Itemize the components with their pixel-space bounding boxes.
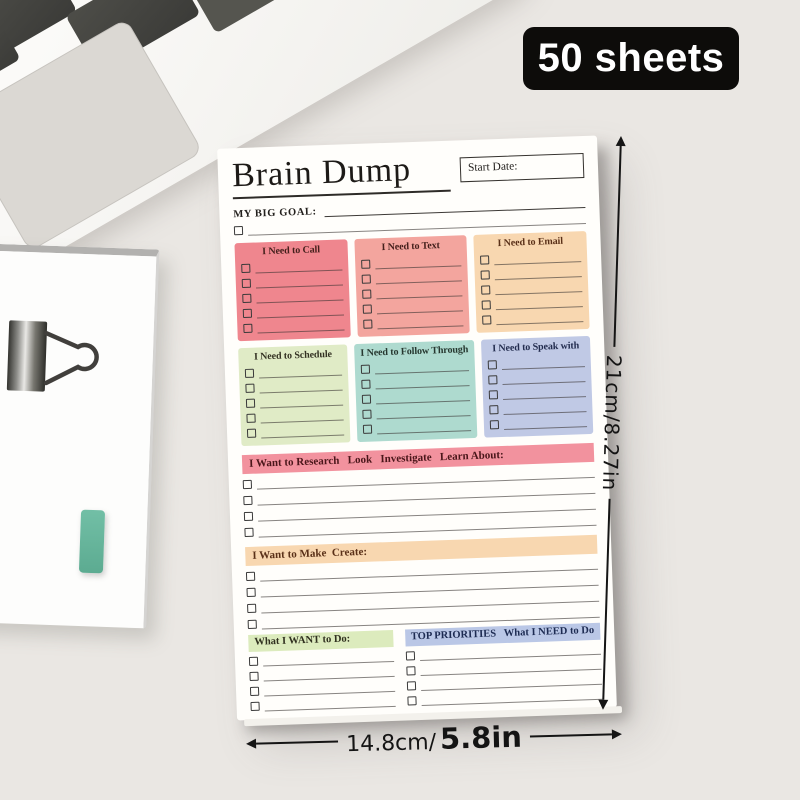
width-dimension-label: 14.8cm/ 5.8in	[338, 719, 531, 758]
checkbox	[361, 274, 370, 283]
width-cm-label: 14.8cm/	[346, 730, 437, 757]
notepad-title: Brain Dump	[231, 151, 450, 194]
checkbox	[244, 511, 253, 520]
checkbox	[406, 666, 415, 675]
note-box-row-1: I Need to CallI Need to TextI Need to Em…	[234, 231, 589, 341]
arrow-up-icon	[616, 136, 626, 146]
arrow-right-icon	[612, 729, 622, 739]
write-line	[258, 329, 345, 333]
sheet-count-badge: 50 sheets	[523, 27, 739, 90]
checkbox	[363, 319, 372, 328]
checkbox	[405, 651, 414, 660]
checkbox	[361, 259, 370, 268]
checkbox	[249, 656, 258, 665]
checkbox	[242, 278, 251, 287]
dimension-line	[613, 146, 621, 347]
checkbox	[234, 226, 243, 235]
note-box-i-need-to-email: I Need to Email	[474, 231, 590, 333]
checkbox	[361, 379, 370, 388]
checkbox	[245, 383, 254, 392]
checkbox	[481, 270, 490, 279]
checkbox	[361, 364, 370, 373]
big-goal-label: MY BIG GOAL:	[233, 206, 317, 220]
write-line	[497, 321, 584, 325]
checkbox	[250, 686, 259, 695]
wide-sections: I Want to Research Look Investigate Lear…	[242, 443, 600, 630]
checkbox	[249, 671, 258, 680]
checkbox	[248, 619, 257, 628]
checkbox	[245, 368, 254, 377]
checkbox	[243, 323, 252, 332]
note-box-i-need-to-call: I Need to Call	[234, 239, 350, 341]
height-dimension-label: 21cm/8.27in	[598, 346, 627, 499]
section-top-priorities-what-i-need-to-: TOP PRIORITIES What I NEED to Do	[405, 622, 603, 706]
binder-clip-icon	[2, 314, 120, 402]
checkbox	[241, 263, 250, 272]
section-i-want-to-make-create: I Want to Make Create:	[245, 534, 600, 629]
checkbox	[244, 527, 253, 536]
dimension-line	[602, 499, 610, 700]
checkbox	[488, 360, 497, 369]
note-box-i-need-to-follow-through: I Need to Follow Through	[354, 340, 477, 442]
write-line	[261, 434, 344, 438]
checkbox	[247, 603, 256, 612]
sheet-count-label: 50 sheets	[538, 36, 725, 81]
checkbox	[243, 479, 252, 488]
desk-scene: 50 sheets Brain Dump Start Date: MY BIG …	[0, 0, 800, 800]
dimension-line	[256, 741, 338, 745]
checkbox	[362, 409, 371, 418]
width-in-label: 5.8in	[440, 720, 523, 756]
checkbox	[246, 571, 255, 580]
arrow-left-icon	[246, 739, 256, 749]
checkbox	[406, 681, 415, 690]
write-line	[265, 706, 396, 712]
start-date-field: Start Date:	[460, 153, 585, 182]
checkbox	[362, 289, 371, 298]
checkbox	[480, 255, 489, 264]
brain-dump-notepad: Brain Dump Start Date: MY BIG GOAL: I Ne…	[217, 136, 617, 721]
checkbox	[362, 304, 371, 313]
dimension-line	[530, 733, 612, 737]
checkbox	[482, 315, 491, 324]
checkbox	[363, 424, 372, 433]
eraser	[79, 510, 105, 574]
section-what-i-want-to-do: What I WANT to Do:	[248, 630, 395, 712]
checkbox	[246, 587, 255, 596]
checkbox	[489, 390, 498, 399]
note-box-i-need-to-speak-with: I Need to Speak with	[481, 336, 593, 438]
checkbox	[243, 308, 252, 317]
note-box-row-2: I Need to ScheduleI Need to Follow Throu…	[238, 336, 593, 446]
write-line	[377, 430, 471, 434]
write-line	[504, 426, 587, 430]
checkbox	[488, 375, 497, 384]
note-box-i-need-to-text: I Need to Text	[354, 235, 470, 337]
write-line	[421, 698, 602, 705]
checkbox	[246, 398, 255, 407]
checkbox	[407, 696, 416, 705]
notepad-header: Brain Dump Start Date:	[231, 146, 584, 199]
section-i-want-to-research-look-invest: I Want to Research Look Investigate Lear…	[242, 443, 597, 538]
checkbox	[246, 413, 255, 422]
checkbox	[243, 495, 252, 504]
checkbox	[490, 420, 499, 429]
checkbox	[362, 394, 371, 403]
write-line	[377, 325, 464, 329]
note-box-i-need-to-schedule: I Need to Schedule	[238, 344, 350, 446]
checkbox	[489, 405, 498, 414]
checkbox	[481, 285, 490, 294]
checkbox	[242, 293, 251, 302]
bottom-sections: What I WANT to Do:TOP PRIORITIES What I …	[248, 622, 602, 711]
checkbox	[482, 300, 491, 309]
checkbox	[247, 428, 256, 437]
checkbox	[250, 701, 259, 710]
arrow-down-icon	[598, 700, 608, 710]
